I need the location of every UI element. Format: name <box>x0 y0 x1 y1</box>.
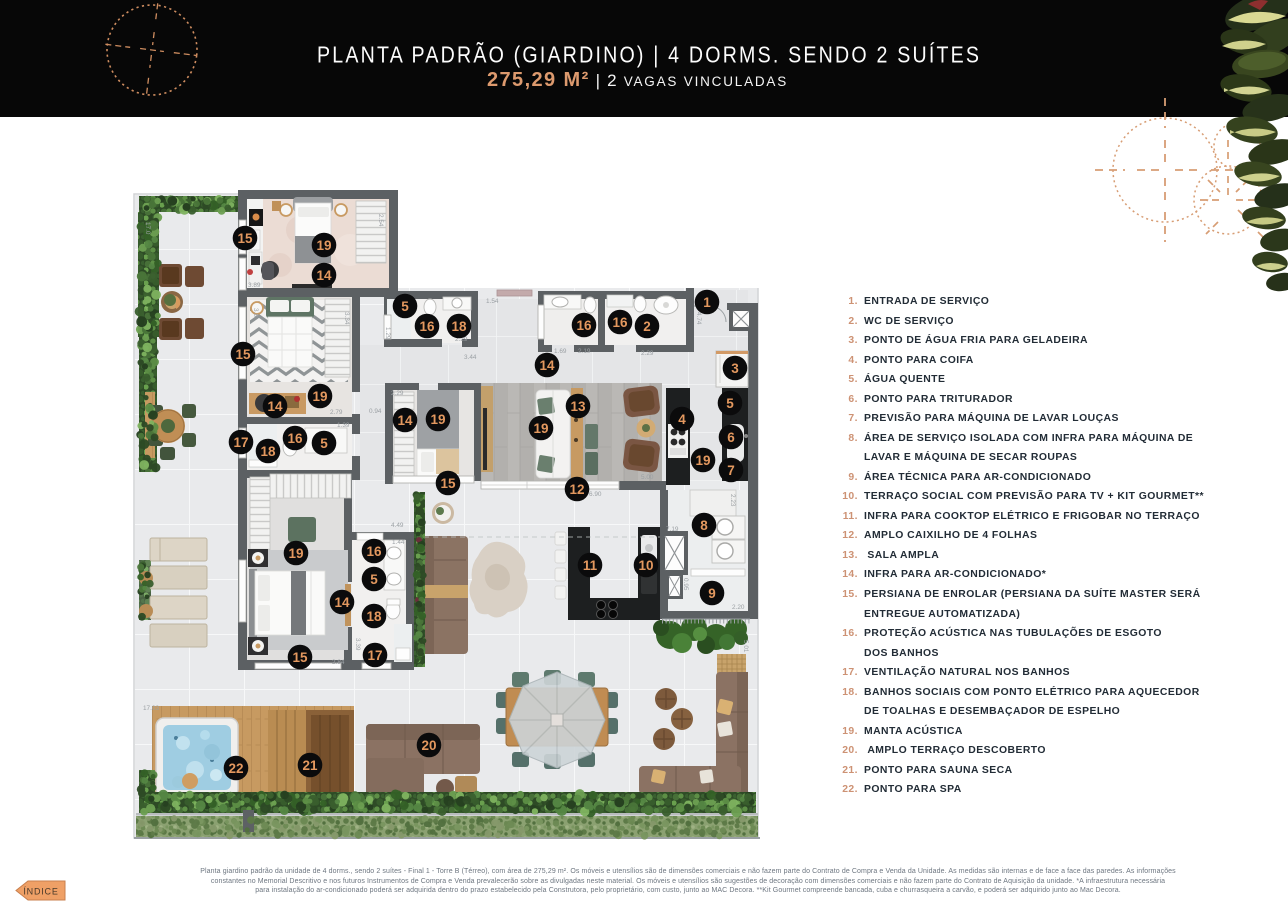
svg-text:2.29: 2.29 <box>641 350 654 357</box>
svg-text:3: 3 <box>731 361 739 376</box>
svg-text:11: 11 <box>583 558 598 573</box>
svg-text:19: 19 <box>695 453 710 468</box>
svg-text:13: 13 <box>570 399 586 414</box>
svg-text:3.8: 3.8 <box>252 308 259 317</box>
svg-text:15: 15 <box>292 650 308 665</box>
svg-text:1.69: 1.69 <box>554 348 567 355</box>
svg-text:0.94: 0.94 <box>369 408 382 415</box>
svg-text:16: 16 <box>612 315 628 330</box>
svg-text:19: 19 <box>312 389 327 404</box>
svg-text:4.49: 4.49 <box>391 522 404 529</box>
svg-text:2.19: 2.19 <box>578 348 591 355</box>
svg-text:18: 18 <box>366 609 382 624</box>
svg-text:5: 5 <box>726 396 734 411</box>
svg-text:15: 15 <box>235 347 251 362</box>
svg-text:15: 15 <box>440 476 456 491</box>
svg-text:7: 7 <box>727 463 735 478</box>
svg-text:4.74: 4.74 <box>695 312 702 325</box>
svg-text:19: 19 <box>533 421 548 436</box>
svg-text:1.29: 1.29 <box>384 327 391 340</box>
svg-text:18: 18 <box>451 319 467 334</box>
svg-text:3.44: 3.44 <box>464 354 477 361</box>
svg-text:17: 17 <box>233 435 248 450</box>
svg-text:14: 14 <box>316 268 332 283</box>
svg-text:2.54: 2.54 <box>377 214 384 227</box>
svg-text:19: 19 <box>288 546 303 561</box>
svg-text:14: 14 <box>539 358 555 373</box>
svg-text:19: 19 <box>316 238 331 253</box>
svg-text:10: 10 <box>638 558 653 573</box>
svg-text:19: 19 <box>430 412 445 427</box>
svg-text:12: 12 <box>569 482 584 497</box>
svg-text:5: 5 <box>320 436 328 451</box>
svg-text:6: 6 <box>727 430 735 445</box>
svg-text:0.95: 0.95 <box>682 578 689 591</box>
svg-text:17.03: 17.03 <box>143 705 159 712</box>
svg-text:7.19: 7.19 <box>666 526 679 533</box>
svg-text:16: 16 <box>576 318 592 333</box>
svg-text:5: 5 <box>401 299 409 314</box>
svg-text:3.34: 3.34 <box>343 312 350 325</box>
svg-text:14: 14 <box>334 595 350 610</box>
svg-text:17: 17 <box>367 648 382 663</box>
svg-text:2.23: 2.23 <box>729 494 736 507</box>
svg-text:9: 9 <box>708 586 716 601</box>
svg-text:5.00: 5.00 <box>641 474 654 481</box>
svg-text:8: 8 <box>700 518 708 533</box>
svg-text:14: 14 <box>397 413 413 428</box>
svg-text:17.0: 17.0 <box>144 222 151 235</box>
svg-text:16: 16 <box>419 319 435 334</box>
svg-text:5: 5 <box>370 572 378 587</box>
svg-text:6.90: 6.90 <box>589 491 602 498</box>
svg-text:5.01: 5.01 <box>742 640 749 653</box>
svg-text:16: 16 <box>366 544 382 559</box>
svg-text:2.79: 2.79 <box>330 409 343 416</box>
svg-text:18: 18 <box>260 444 276 459</box>
svg-text:14: 14 <box>267 399 283 414</box>
svg-text:ÍNDICE: ÍNDICE <box>23 887 58 897</box>
svg-text:16: 16 <box>287 431 303 446</box>
svg-text:22: 22 <box>228 761 243 776</box>
svg-text:1.39: 1.39 <box>337 422 350 429</box>
svg-text:20: 20 <box>421 738 436 753</box>
svg-text:1.44: 1.44 <box>392 539 405 546</box>
svg-text:2.29: 2.29 <box>391 390 404 397</box>
svg-text:3.89: 3.89 <box>248 282 261 289</box>
svg-text:2: 2 <box>643 319 651 334</box>
svg-text:21: 21 <box>302 758 318 773</box>
svg-text:15: 15 <box>237 231 253 246</box>
svg-text:2.84: 2.84 <box>332 659 345 666</box>
svg-text:1.54: 1.54 <box>486 298 499 305</box>
svg-text:2.20: 2.20 <box>732 604 745 611</box>
svg-text:1: 1 <box>703 295 711 310</box>
svg-text:4: 4 <box>678 412 686 427</box>
svg-text:3.39: 3.39 <box>354 638 361 651</box>
